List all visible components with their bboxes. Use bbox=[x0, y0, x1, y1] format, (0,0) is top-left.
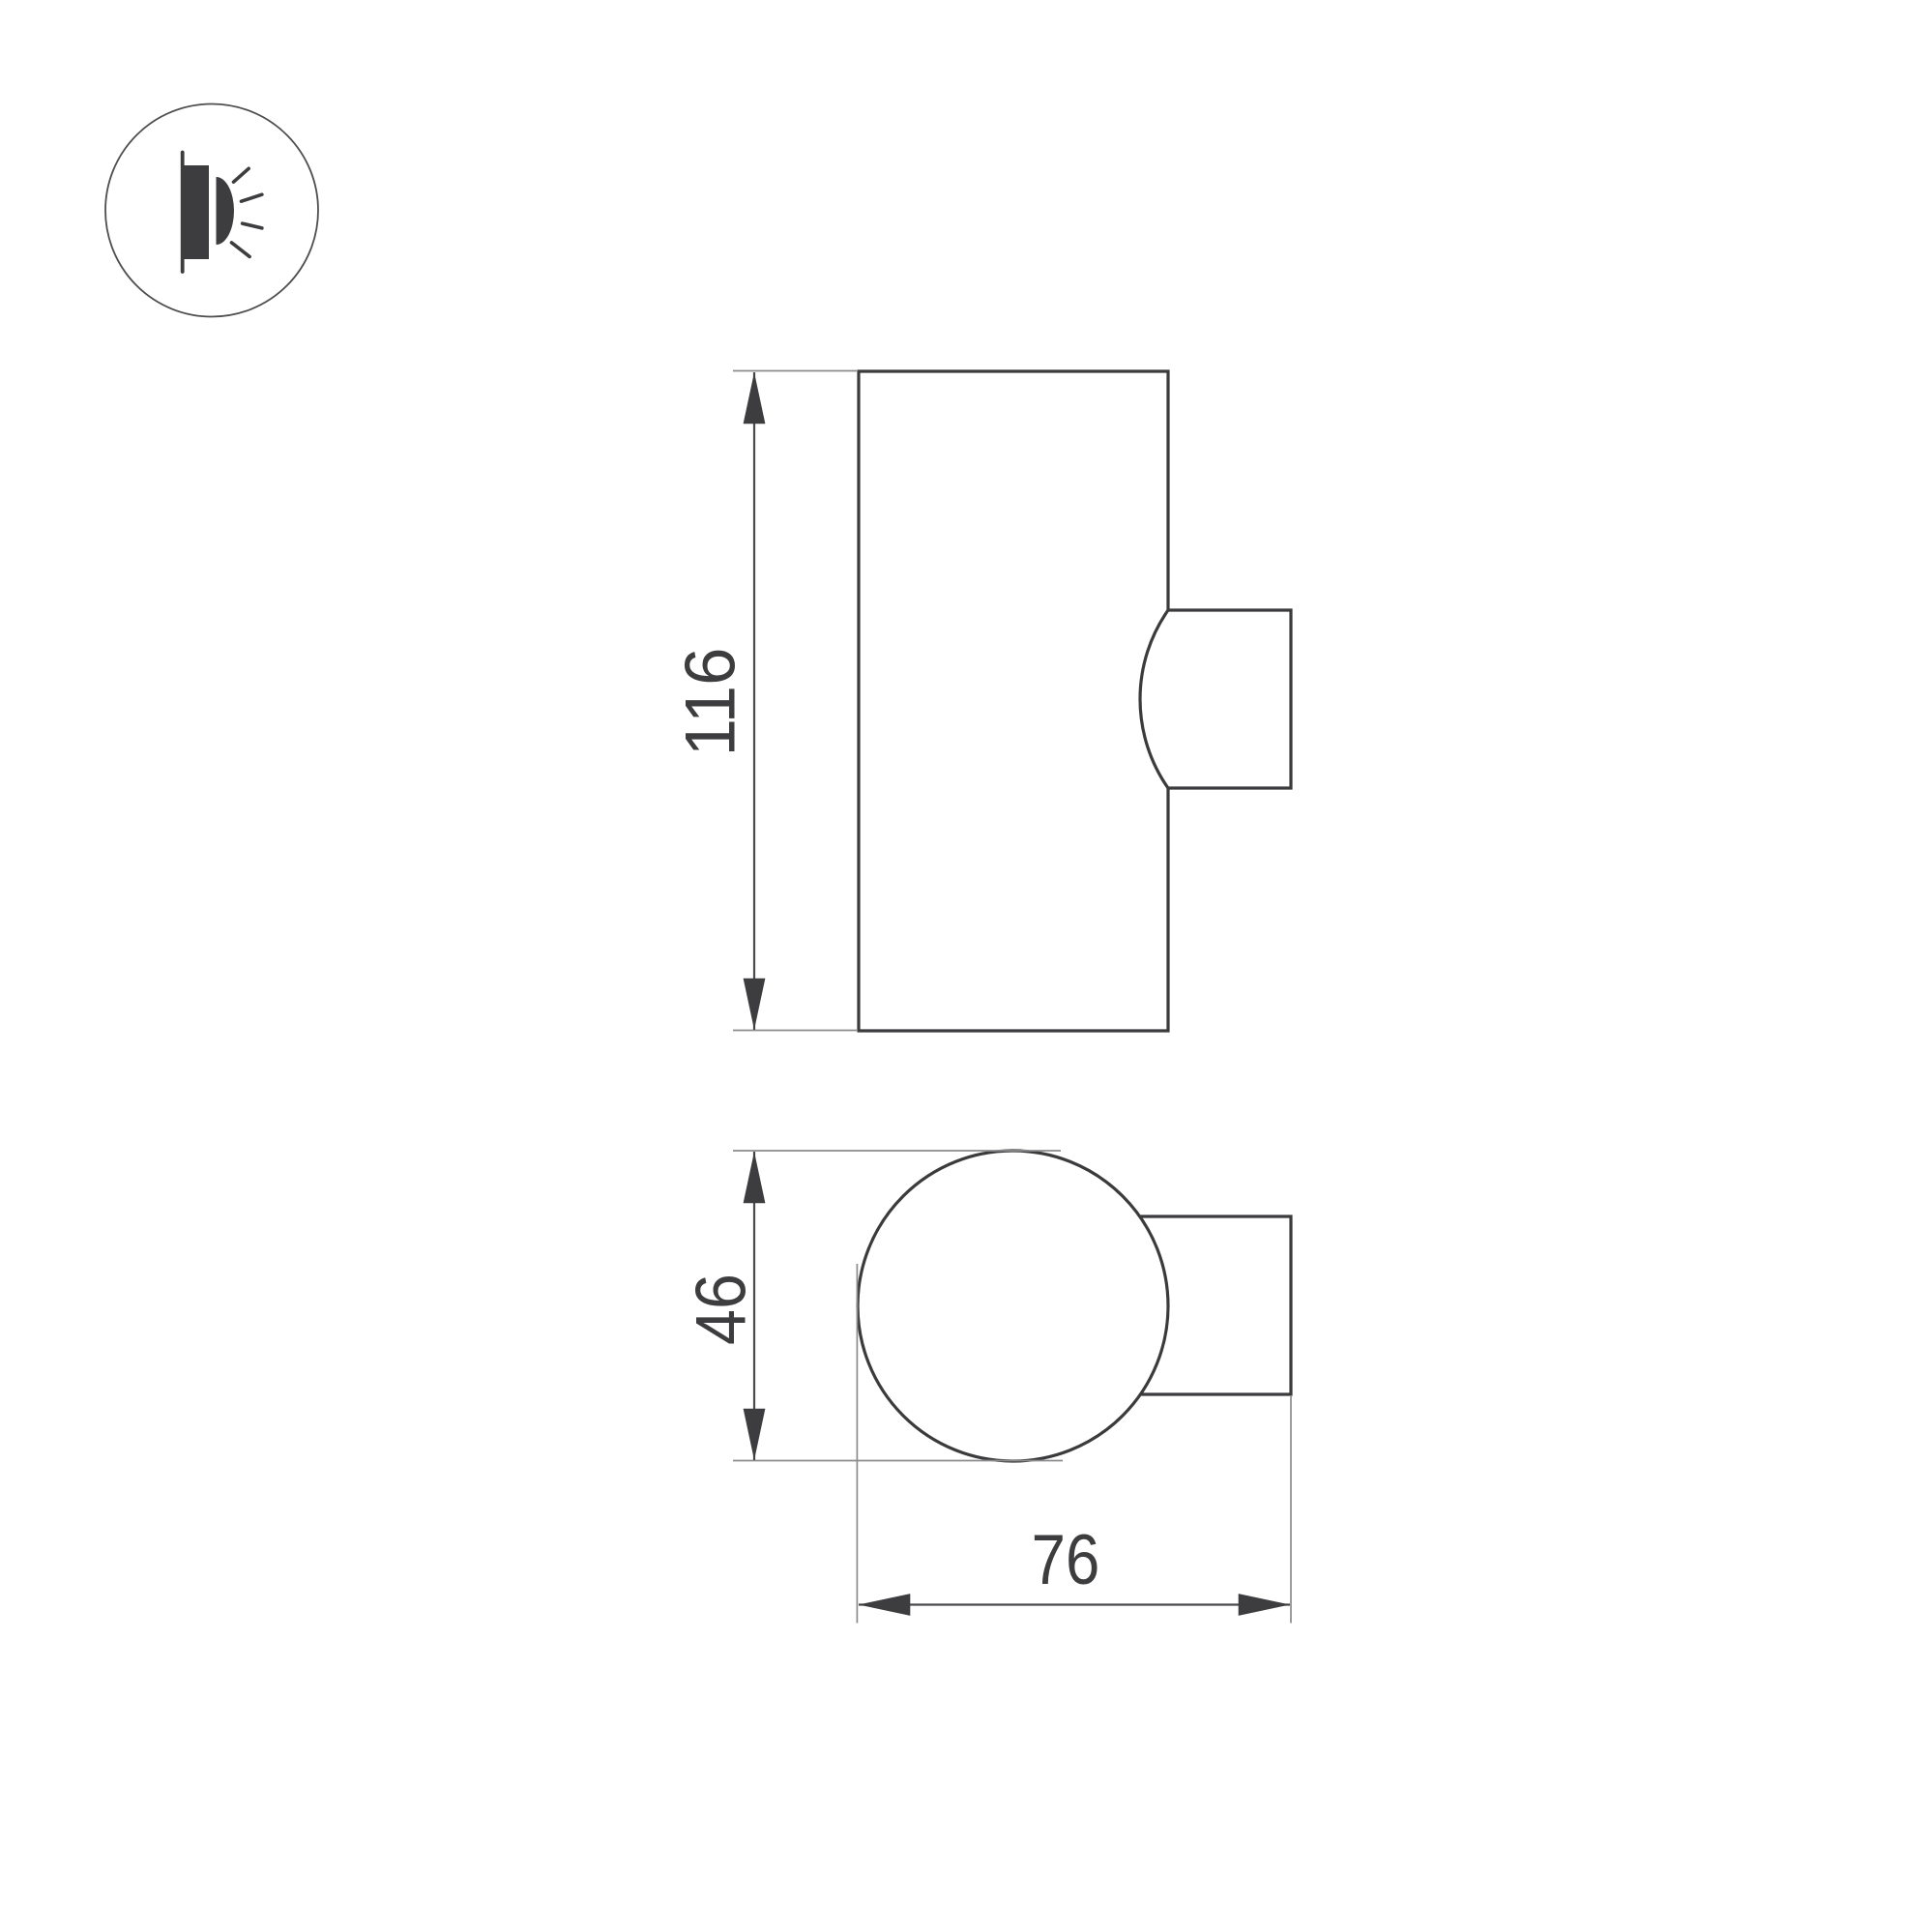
svg-text:76: 76 bbox=[1032, 1521, 1100, 1599]
svg-text:116: 116 bbox=[672, 648, 750, 757]
svg-text:46: 46 bbox=[682, 1273, 761, 1345]
